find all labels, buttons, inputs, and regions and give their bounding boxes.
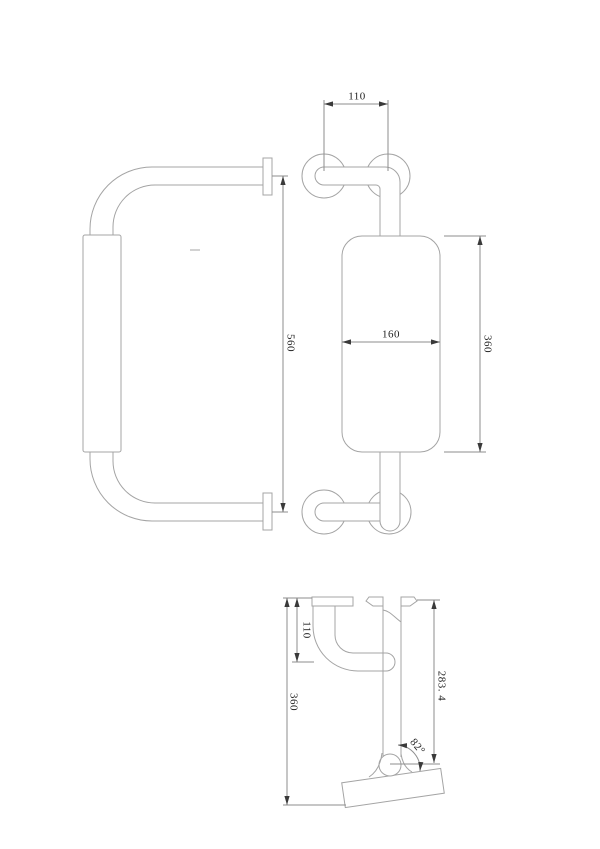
side-upper-tube-inner bbox=[113, 185, 263, 235]
side-grip-pad bbox=[83, 235, 121, 452]
profile-bracket-right bbox=[401, 597, 417, 606]
front-bottom-tube bbox=[315, 503, 380, 521]
side-bottom-flange bbox=[263, 493, 272, 530]
side-view bbox=[83, 158, 272, 530]
drawing-canvas bbox=[0, 0, 600, 849]
profile-grab-tube-inner bbox=[335, 606, 386, 653]
side-lower-tube bbox=[90, 452, 263, 521]
dim-pad-height-label: 360 bbox=[482, 335, 493, 353]
side-lower-tube-inner bbox=[113, 452, 263, 503]
profile-tube-intersection-curve bbox=[383, 610, 401, 622]
front-top-tube bbox=[315, 167, 400, 236]
drawing-sheet: 560 110 160 360 110 360 283. 4 82° bbox=[0, 0, 600, 849]
profile-wall-plate bbox=[312, 597, 353, 606]
dim-flange-spacing-label: 110 bbox=[348, 92, 366, 103]
dim-overall-depth-label: 360 bbox=[288, 693, 299, 711]
profile-view bbox=[312, 597, 444, 808]
dim-drop-label: 283. 4 bbox=[436, 671, 447, 702]
front-support-tube bbox=[380, 452, 400, 531]
side-top-flange bbox=[263, 158, 272, 195]
side-upper-tube bbox=[90, 167, 263, 235]
dim-overall-height-label: 560 bbox=[285, 334, 296, 352]
profile-fillet-right bbox=[401, 754, 412, 772]
profile-grab-tube-outer bbox=[313, 606, 386, 671]
front-backrest-pad bbox=[342, 236, 440, 452]
dim-pad-width-label: 160 bbox=[382, 330, 400, 341]
profile-bracket-left bbox=[366, 597, 383, 606]
front-view bbox=[302, 154, 440, 534]
dim-wall-offset-label: 110 bbox=[301, 621, 312, 639]
profile-grab-tube-cap bbox=[386, 653, 395, 671]
profile-tube-end bbox=[379, 754, 401, 776]
